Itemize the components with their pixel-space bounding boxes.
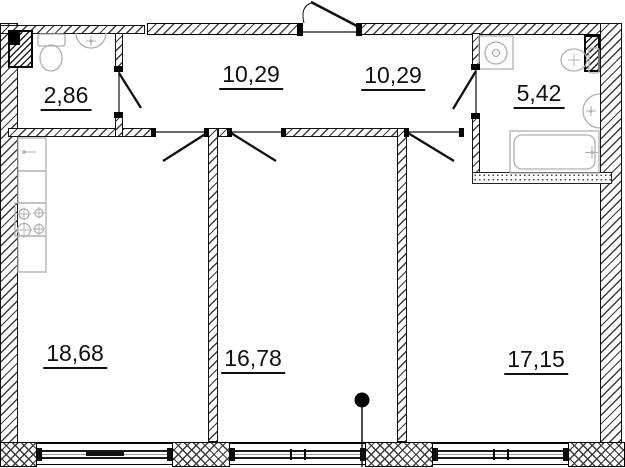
window-sill	[433, 464, 568, 466]
wall-corridor-bottom-left	[8, 128, 155, 137]
window-jamb	[433, 448, 438, 461]
partition-bath-upper	[472, 33, 480, 70]
door-room-right	[404, 128, 464, 161]
wash-basin-bath-icon	[583, 94, 600, 128]
wash-basin-wc-icon	[76, 33, 106, 48]
pier-corner-right	[568, 442, 625, 467]
door-room-middle	[227, 128, 286, 161]
vent-shaft-plug	[10, 32, 20, 45]
wall-outer-right	[600, 23, 622, 467]
bathtub-icon	[510, 131, 599, 173]
wall-top-entry-left	[147, 23, 303, 35]
wall-outer-left	[0, 23, 18, 467]
toilet-wc-icon	[38, 34, 65, 71]
door-wc	[114, 66, 141, 118]
kitchen-sink-icon	[22, 150, 36, 154]
window-jamb	[37, 448, 42, 461]
door-bathroom	[453, 64, 480, 119]
area-label-hallway-right: 10,29	[361, 64, 425, 91]
area-label-bathroom: 5,42	[514, 82, 565, 109]
entrance-door	[297, 2, 362, 36]
window-jamb	[230, 448, 235, 461]
area-label-room-middle: 16,78	[221, 347, 285, 374]
wall-corridor-bottom-right	[283, 128, 398, 137]
pier-middle-left	[172, 442, 230, 467]
stove-icon	[15, 203, 46, 238]
floor-plan-canvas: 2,86 10,29 10,29 5,42 18,68 16,78 17,15	[0, 0, 625, 468]
pier-middle-right	[365, 442, 433, 467]
wall-top-entry-right	[357, 23, 622, 35]
window-mullion	[290, 449, 306, 460]
area-label-hallway-left: 10,29	[219, 63, 283, 90]
kitchen-cabinets-icon	[18, 138, 46, 272]
vent-shaft-left-icon	[8, 30, 33, 68]
doors-fixtures-layer	[0, 0, 625, 468]
window-sill	[37, 464, 172, 466]
partition-wc-upper	[115, 33, 123, 72]
window-sash	[86, 452, 124, 456]
wall-corridor-bottom-stub	[218, 128, 230, 137]
partition-room-room	[397, 128, 407, 442]
window-room-middle	[230, 442, 365, 466]
window-sill	[230, 464, 365, 466]
window-jamb	[360, 448, 365, 461]
area-label-kitchen-living: 18,68	[43, 342, 107, 369]
partition-kitchen-room	[208, 128, 218, 442]
partition-wc-lower	[115, 112, 123, 137]
washing-machine-icon	[479, 36, 513, 69]
pier-corner-left	[0, 442, 37, 467]
area-label-wc: 2,86	[41, 84, 92, 111]
wall-bath-bottom	[472, 172, 612, 184]
area-label-room-right: 17,15	[504, 348, 568, 375]
window-kitchen	[37, 442, 172, 466]
window-mullion	[493, 449, 509, 460]
window-room-right	[433, 442, 568, 466]
window-jamb	[167, 448, 172, 461]
door-kitchen-living	[151, 128, 209, 161]
window-jamb	[563, 448, 568, 461]
vent-shaft-right-icon	[584, 35, 600, 72]
